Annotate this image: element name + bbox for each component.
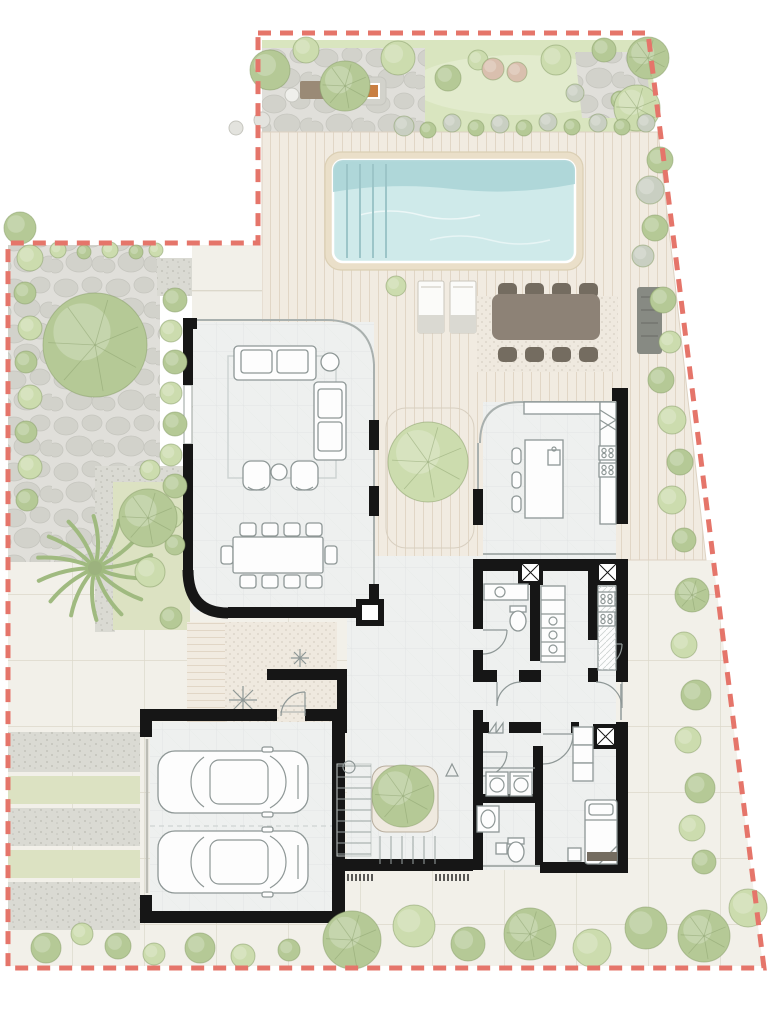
island-stool xyxy=(512,448,521,464)
tree xyxy=(482,58,504,80)
scullery-stove-2 xyxy=(598,612,615,626)
tree xyxy=(119,489,177,547)
tree xyxy=(394,116,414,136)
tree xyxy=(160,382,182,404)
driveway-band-texture xyxy=(8,882,140,930)
tree xyxy=(323,911,381,969)
tree xyxy=(163,412,187,436)
tree xyxy=(539,113,557,131)
tree xyxy=(658,486,686,514)
tree xyxy=(163,350,187,374)
tree xyxy=(77,245,91,259)
tree xyxy=(642,215,668,241)
tree xyxy=(451,927,485,961)
driveway-band-texture xyxy=(8,732,140,772)
coffee-table xyxy=(271,464,287,480)
wardrobe-2 xyxy=(573,745,593,763)
dining-chair xyxy=(325,546,337,564)
tree xyxy=(504,908,556,960)
toilet-bowl xyxy=(510,611,526,631)
outdoor-chair xyxy=(552,347,571,362)
outdoor-chair xyxy=(525,347,544,362)
driveway-band-green xyxy=(8,776,140,804)
outdoor-dining-table xyxy=(492,294,600,340)
dining-chair xyxy=(262,523,278,536)
tree xyxy=(15,421,37,443)
living-west-window xyxy=(184,385,192,444)
swimming-pool xyxy=(325,152,583,270)
dining-chair xyxy=(240,575,256,588)
bed-pillow xyxy=(589,804,613,815)
bed-bench xyxy=(587,852,617,861)
tree xyxy=(278,939,300,961)
tree xyxy=(564,119,580,135)
chaise-sofa xyxy=(314,382,346,460)
tree xyxy=(17,245,43,271)
tree xyxy=(658,406,686,434)
island-sink xyxy=(548,450,560,465)
tree xyxy=(388,422,468,502)
tree xyxy=(589,114,607,132)
tree xyxy=(163,288,187,312)
tree xyxy=(516,120,532,136)
tree xyxy=(625,907,667,949)
tree xyxy=(386,276,406,296)
tree xyxy=(675,727,701,753)
kitchen-north-counter xyxy=(524,402,600,414)
nightstand xyxy=(568,848,581,861)
bath-shelf xyxy=(496,843,507,854)
tree xyxy=(163,474,187,498)
tree xyxy=(636,176,664,204)
boulder xyxy=(229,121,243,135)
tree xyxy=(573,929,611,967)
tree xyxy=(4,212,36,244)
scullery-stove-1 xyxy=(598,592,615,606)
tree xyxy=(293,37,319,63)
tree xyxy=(675,578,709,612)
dining-chair xyxy=(306,575,322,588)
dining-chair xyxy=(240,523,256,536)
dining-chair xyxy=(221,546,233,564)
driveway-band-green xyxy=(8,850,140,878)
tree xyxy=(648,367,674,393)
tree xyxy=(129,245,143,259)
toilet2-bowl xyxy=(508,842,524,862)
palm-trunk xyxy=(88,561,102,575)
tree xyxy=(443,114,461,132)
tree xyxy=(393,905,435,947)
outdoor-chair xyxy=(579,347,598,362)
sun-lounger xyxy=(450,281,476,333)
site-plan xyxy=(0,0,768,1019)
side-table xyxy=(321,353,339,371)
dining-table xyxy=(233,537,323,573)
tree xyxy=(31,933,61,963)
tree xyxy=(491,115,509,133)
bbq-stool xyxy=(285,88,299,102)
tree xyxy=(185,933,215,963)
sofa xyxy=(234,346,316,380)
tree xyxy=(135,557,165,587)
tree xyxy=(650,287,676,313)
site-plan-canvas xyxy=(0,0,768,1019)
tree xyxy=(320,61,370,111)
tree xyxy=(667,449,693,475)
tree xyxy=(71,923,93,945)
tree xyxy=(468,120,484,136)
tree xyxy=(678,910,730,962)
tree xyxy=(435,65,461,91)
tree xyxy=(143,943,165,965)
structural-column xyxy=(518,560,543,585)
tree xyxy=(140,460,160,480)
structural-column xyxy=(593,724,618,749)
island-stool xyxy=(512,472,521,488)
tree xyxy=(18,385,42,409)
tree xyxy=(659,331,681,353)
car xyxy=(158,747,308,817)
dryer xyxy=(510,772,532,796)
dining-chair xyxy=(284,523,300,536)
tree xyxy=(372,765,434,827)
wardrobe-3 xyxy=(573,763,593,781)
sun-lounger xyxy=(418,281,444,333)
tree xyxy=(507,62,527,82)
tree xyxy=(729,889,767,927)
tree xyxy=(685,773,715,803)
dining-pier-inset xyxy=(362,605,378,620)
gravel-driveway xyxy=(8,732,140,930)
tree xyxy=(692,850,716,874)
driveway-band-texture xyxy=(8,808,140,846)
tree xyxy=(160,320,182,342)
wardrobe-1 xyxy=(573,727,593,745)
tree xyxy=(15,351,37,373)
tree xyxy=(14,282,36,304)
tree xyxy=(681,680,711,710)
tree xyxy=(43,293,147,397)
tree xyxy=(614,119,630,135)
tree xyxy=(381,41,415,75)
tree xyxy=(105,933,131,959)
tree xyxy=(18,316,42,340)
tree xyxy=(160,444,182,466)
tree xyxy=(16,489,38,511)
pantry-cabinet xyxy=(541,586,565,662)
tree xyxy=(679,815,705,841)
dining-chair xyxy=(262,575,278,588)
dining-chair xyxy=(284,575,300,588)
structural-column xyxy=(595,560,620,585)
tree xyxy=(18,455,42,479)
island-stools xyxy=(512,448,521,512)
tree xyxy=(632,245,654,267)
outdoor-chair xyxy=(498,347,517,362)
tree xyxy=(541,45,571,75)
oven-icon xyxy=(599,463,616,477)
car xyxy=(158,827,308,897)
tree xyxy=(672,528,696,552)
tree xyxy=(671,632,697,658)
tree xyxy=(231,944,255,968)
tree xyxy=(647,147,673,173)
tree xyxy=(420,122,436,138)
washer xyxy=(486,772,508,796)
tree xyxy=(637,114,655,132)
outdoor-dining-set xyxy=(477,283,618,372)
island-stool xyxy=(512,496,521,512)
tree xyxy=(592,38,616,62)
tree xyxy=(160,607,182,629)
powder-vanity xyxy=(484,584,528,600)
tree xyxy=(566,84,584,102)
dining-chair xyxy=(306,523,322,536)
cooktop-icon xyxy=(599,446,616,460)
